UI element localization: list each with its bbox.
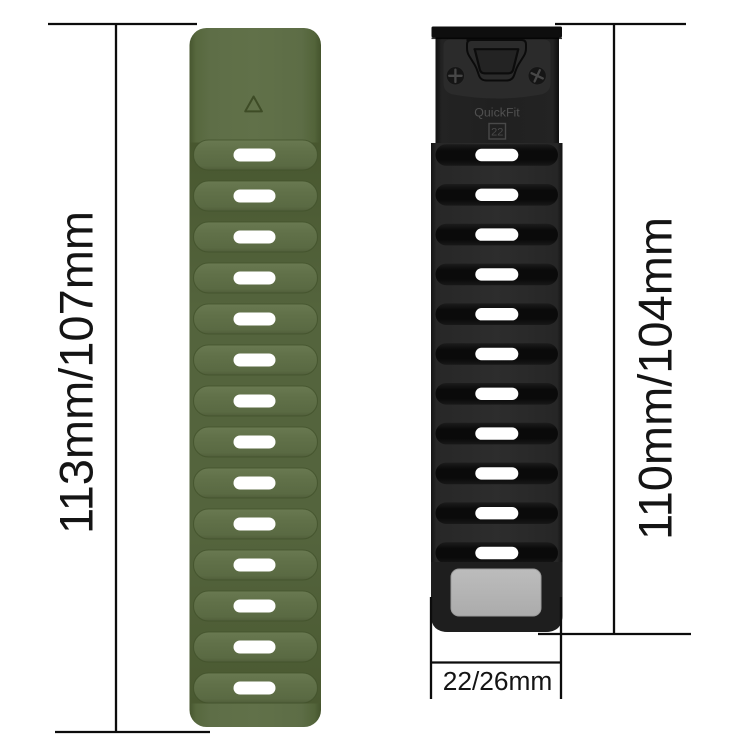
svg-text:22: 22	[491, 127, 503, 139]
svg-text:QuickFit: QuickFit	[474, 106, 520, 120]
svg-text:113mm/107mm: 113mm/107mm	[50, 211, 103, 534]
svg-text:22/26mm: 22/26mm	[443, 666, 553, 696]
svg-text:110mm/104mm: 110mm/104mm	[629, 217, 682, 540]
